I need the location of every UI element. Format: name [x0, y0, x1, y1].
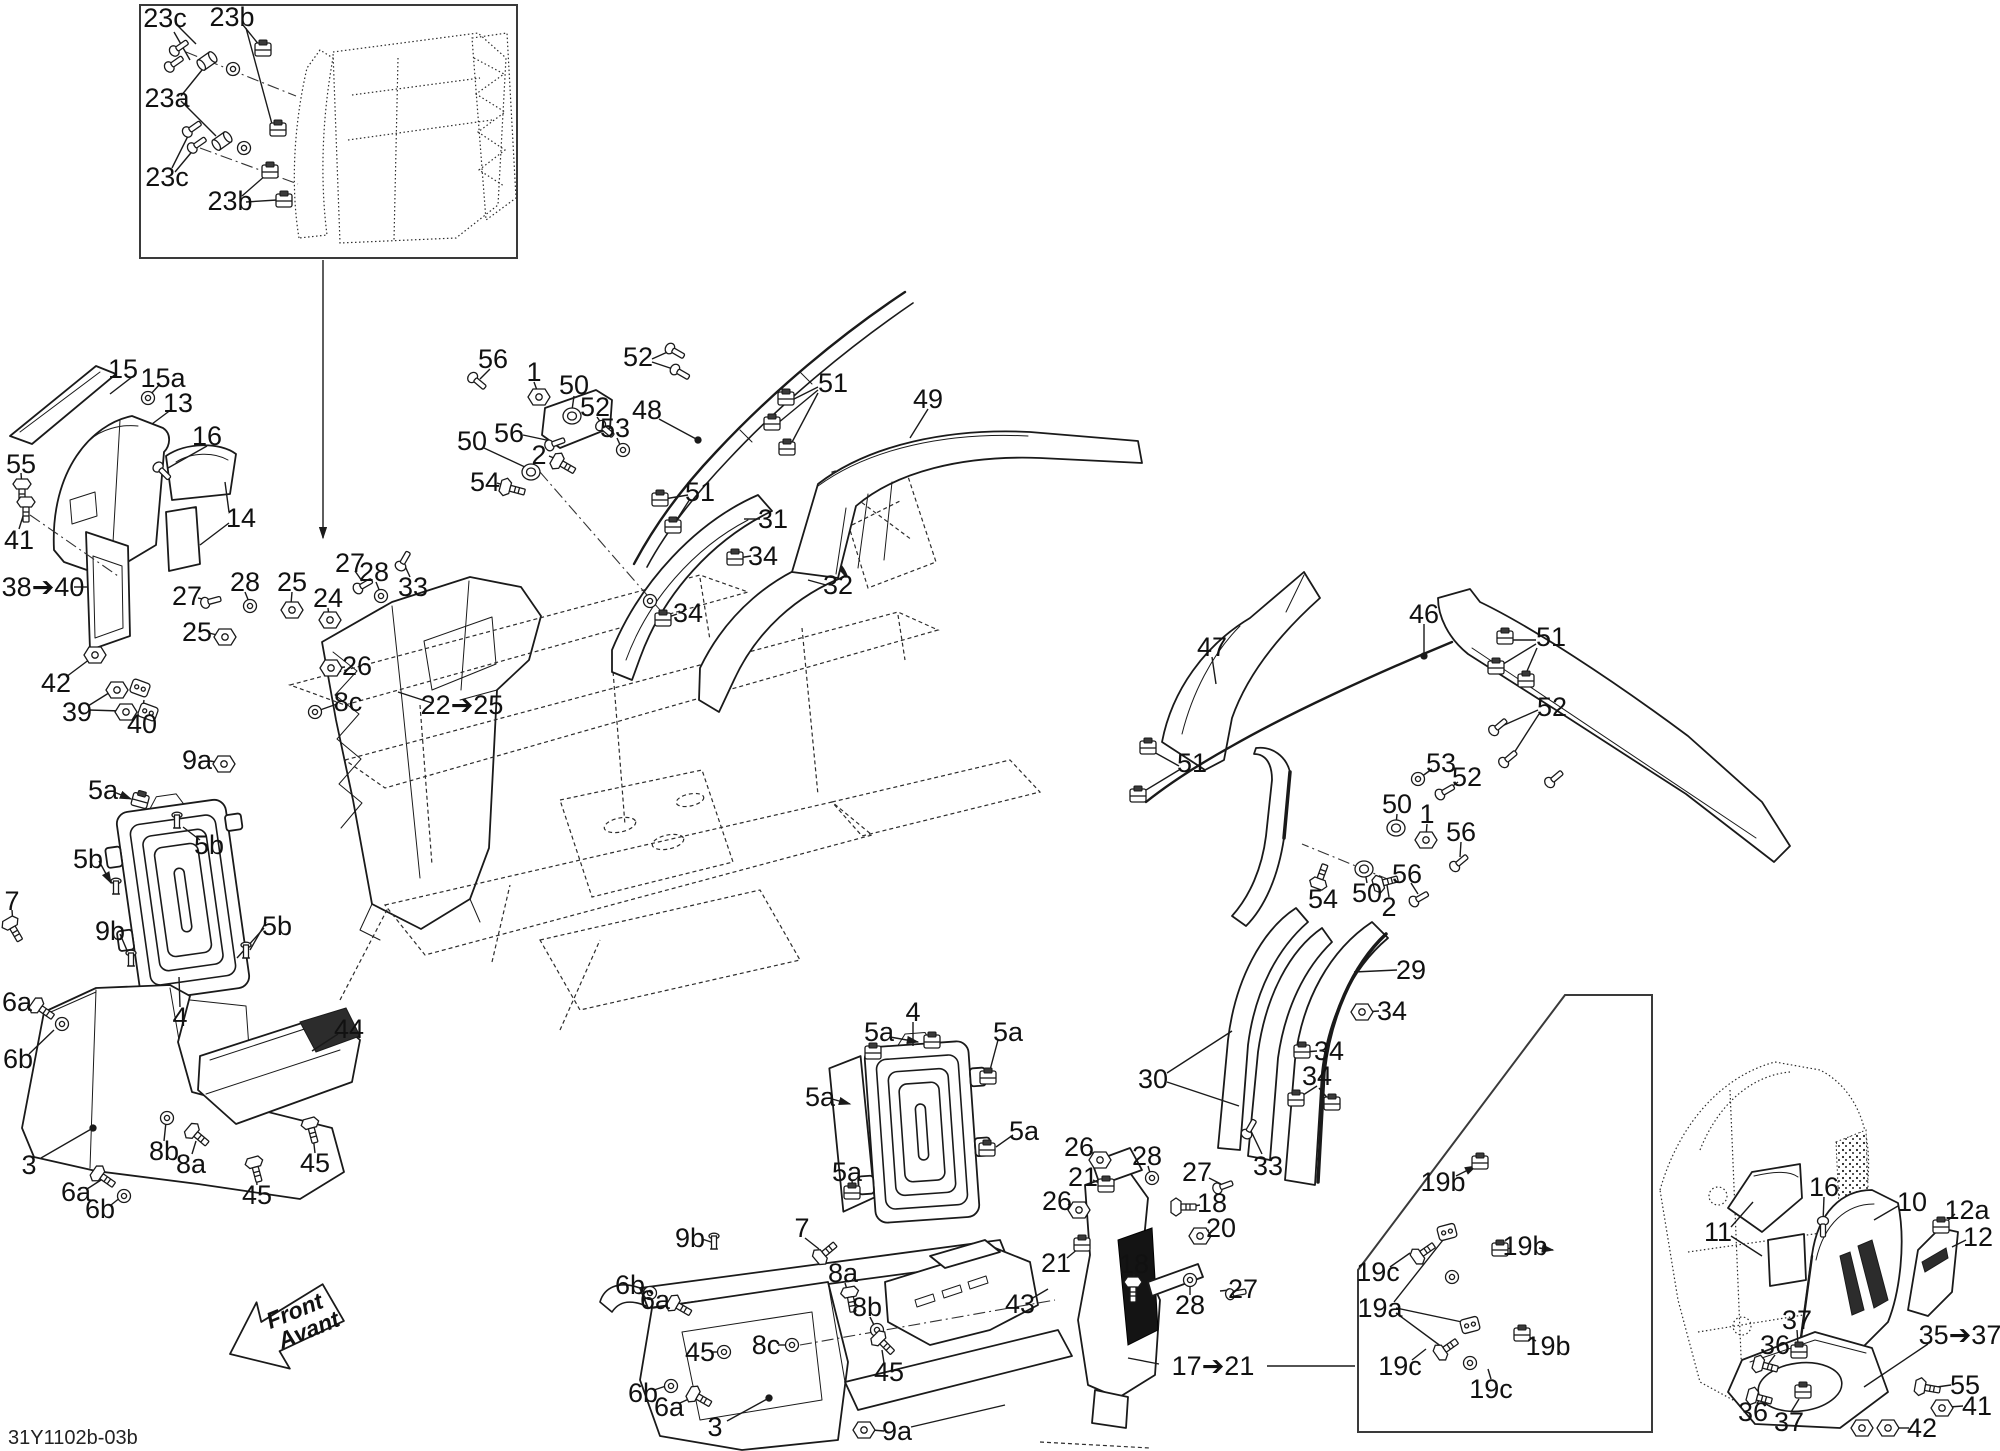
callout-45: 45	[242, 1180, 272, 1210]
axis-line	[200, 148, 298, 184]
clip-icon	[1130, 786, 1146, 802]
nut-icon	[1351, 1004, 1373, 1020]
spacer-icon	[195, 50, 218, 71]
callout-19a: 19a	[1357, 1293, 1403, 1323]
clip-icon	[979, 1140, 995, 1156]
nut-icon	[1415, 832, 1437, 848]
washer-icon	[644, 595, 657, 608]
screw-icon	[1407, 889, 1430, 909]
bolt-icon	[1914, 1377, 1942, 1399]
washer-icon	[142, 392, 155, 405]
callout-54: 54	[470, 467, 500, 497]
screw-icon	[663, 341, 686, 361]
nut-icon	[1877, 1420, 1899, 1436]
plate-icon	[1459, 1316, 1480, 1334]
clip-icon	[764, 414, 780, 430]
callout-47: 47	[1197, 632, 1227, 662]
callout-7: 7	[794, 1213, 809, 1243]
nut-icon	[281, 602, 303, 618]
clip-icon	[1791, 1342, 1807, 1358]
callout-1: 1	[1419, 799, 1434, 829]
clip-icon	[1098, 1176, 1114, 1192]
washer-icon	[665, 1380, 678, 1393]
callout-10: 10	[1897, 1187, 1927, 1217]
clip-icon	[1074, 1235, 1090, 1251]
leader-line	[484, 448, 527, 468]
screw-icon	[393, 549, 413, 572]
nut-icon	[853, 1422, 875, 1438]
inset-border	[140, 5, 517, 258]
clip-icon	[665, 517, 681, 533]
exploded-parts-diagram: Front Avant 31Y1102b-03b 23c23b23a23c23b…	[0, 0, 2000, 1451]
callout-6b: 6b	[85, 1194, 115, 1224]
screw-icon	[668, 362, 691, 382]
clip-icon	[924, 1032, 940, 1048]
callout-44: 44	[334, 1014, 364, 1044]
callout-28: 28	[359, 557, 389, 587]
callout-28: 28	[1132, 1141, 1162, 1171]
front-direction-arrow: Front Avant	[216, 1275, 353, 1388]
grommet-icon	[1355, 861, 1373, 877]
callout-21: 21	[1041, 1248, 1071, 1278]
callout-56: 56	[494, 418, 524, 448]
clip-icon	[270, 120, 286, 136]
callout-51: 51	[1177, 748, 1207, 778]
callout-8b: 8b	[149, 1136, 179, 1166]
callout-45: 45	[874, 1357, 904, 1387]
callout-45: 45	[685, 1337, 715, 1367]
callout-52: 52	[1452, 762, 1482, 792]
callout-20: 20	[1206, 1213, 1236, 1243]
callout-5b: 5b	[194, 830, 224, 860]
callout-23b: 23b	[209, 2, 254, 32]
nut-icon	[320, 660, 342, 676]
leader-line	[659, 419, 698, 440]
callout-41: 41	[1962, 1391, 1992, 1421]
callout-12a: 12a	[1944, 1195, 1990, 1225]
clip-icon	[1140, 738, 1156, 754]
leader-line	[1396, 1313, 1442, 1347]
callout-28: 28	[1175, 1290, 1205, 1320]
callout-1: 1	[526, 357, 541, 387]
callout-5a: 5a	[1009, 1116, 1040, 1146]
pin-icon	[126, 950, 136, 966]
callout-25: 25	[277, 567, 307, 597]
screw-icon	[1543, 768, 1566, 790]
washer-icon	[1184, 1274, 1197, 1287]
callout-23b: 23b	[207, 186, 252, 216]
drawing-number: 31Y1102b-03b	[8, 1427, 138, 1449]
washer-icon	[617, 444, 630, 457]
callout-45: 45	[300, 1148, 330, 1178]
clip-icon	[1497, 628, 1513, 644]
callout-41: 41	[4, 525, 34, 555]
callout-4: 4	[905, 997, 920, 1027]
part-11-deflectors	[1728, 1164, 1806, 1286]
clip-icon	[1488, 658, 1504, 674]
screw-icon	[1487, 716, 1510, 738]
callout-52: 52	[623, 342, 653, 372]
washer-icon	[718, 1346, 731, 1359]
callout-6a: 6a	[640, 1285, 671, 1315]
callout-50: 50	[1382, 789, 1412, 819]
part-38-40-lower-panel	[86, 532, 130, 650]
leader-line	[1354, 970, 1397, 972]
part-10-console-panel	[1800, 1190, 1902, 1356]
callout-5a: 5a	[864, 1017, 895, 1047]
washer-icon	[224, 60, 242, 78]
callout-2: 2	[531, 440, 546, 470]
callout-40: 40	[127, 709, 157, 739]
part-22-25-front-frame	[322, 577, 541, 940]
nut-icon	[214, 629, 236, 645]
callout-23a: 23a	[144, 83, 190, 113]
callout-27: 27	[172, 581, 202, 611]
callout-9b: 9b	[95, 916, 125, 946]
callout-53: 53	[600, 413, 630, 443]
pin-icon	[111, 878, 121, 894]
callout-23c: 23c	[145, 162, 189, 192]
part-12-side-strip	[1908, 1228, 1958, 1316]
leader-line	[1167, 1031, 1232, 1073]
callout-56: 56	[478, 344, 508, 374]
callout-8b: 8b	[852, 1292, 882, 1322]
callout-36: 36	[1738, 1397, 1768, 1427]
callout-19b: 19b	[1502, 1231, 1547, 1261]
leader-line	[1731, 1236, 1762, 1256]
grommet-icon	[563, 408, 581, 424]
callout-42: 42	[41, 668, 71, 698]
leader-line	[200, 523, 229, 545]
washer-icon	[56, 1018, 69, 1031]
callout-27: 27	[1228, 1274, 1258, 1304]
washer-icon	[118, 1190, 131, 1203]
callout-50: 50	[457, 426, 487, 456]
callout-8a: 8a	[176, 1149, 207, 1179]
leader-line	[911, 1405, 1005, 1427]
part-4-radiator-left	[99, 785, 265, 1003]
callout-labels-layer: 23c23b23a23c23b1515a131655411438➔4027282…	[2, 2, 2000, 1446]
screw-icon	[1448, 852, 1471, 874]
clip-icon	[1294, 1042, 1310, 1058]
clip-icon	[980, 1068, 996, 1084]
callout-51: 51	[685, 477, 715, 507]
callout-7: 7	[4, 886, 19, 916]
callout-33: 33	[398, 572, 428, 602]
callout-9b: 9b	[675, 1223, 705, 1253]
callout-9a: 9a	[882, 1416, 913, 1446]
callout-5a: 5a	[832, 1157, 863, 1187]
clip-icon	[652, 490, 668, 506]
washer-icon	[1464, 1357, 1477, 1370]
nut-icon	[84, 647, 106, 663]
axis-line	[1302, 844, 1390, 880]
clip-icon	[1795, 1382, 1811, 1398]
callout-34: 34	[1302, 1061, 1332, 1091]
callout-19c: 19c	[1378, 1351, 1422, 1381]
callout-2: 2	[1381, 892, 1396, 922]
callout-17➔21: 17➔21	[1172, 1351, 1255, 1381]
part-14-deflector-lower	[166, 507, 200, 571]
callout-24: 24	[313, 583, 343, 613]
clip-icon	[262, 162, 278, 178]
part-14-deflector-upper	[166, 445, 236, 500]
grommet-icon	[1387, 820, 1405, 836]
washer-icon	[375, 590, 388, 603]
washer-icon	[1412, 773, 1425, 786]
screw-icon	[199, 593, 222, 609]
callout-5a: 5a	[993, 1017, 1024, 1047]
callout-16: 16	[1809, 1172, 1839, 1202]
callout-49: 49	[913, 384, 943, 414]
callout-52: 52	[1537, 692, 1567, 722]
clip-icon	[778, 389, 794, 405]
nut-icon	[528, 389, 550, 405]
callout-6a: 6a	[2, 987, 33, 1017]
callout-11: 11	[1704, 1217, 1732, 1247]
callout-16: 16	[192, 421, 222, 451]
callout-38➔40: 38➔40	[2, 572, 85, 602]
callout-35➔37: 35➔37	[1919, 1320, 2000, 1350]
callout-19b: 19b	[1525, 1331, 1570, 1361]
part-49-seat-base-panel	[792, 431, 1142, 578]
callout-12: 12	[1963, 1222, 1993, 1252]
callout-28: 28	[230, 567, 260, 597]
screw-icon	[180, 118, 203, 139]
bolt-icon	[548, 451, 579, 479]
parts-layer: Front Avant 31Y1102b-03b	[8, 5, 1958, 1450]
callout-26: 26	[1064, 1132, 1094, 1162]
bolt-icon	[0, 914, 28, 945]
callout-29: 29	[1396, 955, 1426, 985]
bolt-icon	[1431, 1334, 1462, 1363]
page: { "document": { "part_code": "31Y1102b-0…	[0, 0, 2000, 1451]
washer-icon	[309, 706, 322, 719]
plate-icon	[129, 678, 151, 697]
callout-43: 43	[1005, 1289, 1035, 1319]
callout-34: 34	[673, 598, 703, 628]
callout-4: 4	[172, 1002, 187, 1032]
callout-56: 56	[1392, 859, 1422, 889]
axis-line	[540, 472, 660, 610]
callout-26: 26	[1042, 1186, 1072, 1216]
clip-icon	[276, 191, 292, 207]
callout-51: 51	[1536, 622, 1566, 652]
callout-19c: 19c	[1469, 1374, 1513, 1404]
callout-46: 46	[1409, 599, 1439, 629]
clip-icon	[1472, 1153, 1488, 1169]
clip-icon	[1518, 671, 1534, 687]
callout-8c: 8c	[334, 687, 363, 717]
washer-icon	[161, 1112, 174, 1125]
clip-icon	[131, 789, 151, 809]
callout-5b: 5b	[262, 911, 292, 941]
callout-14: 14	[226, 503, 256, 533]
callout-25: 25	[182, 617, 212, 647]
nut-icon	[319, 612, 341, 628]
callout-8c: 8c	[752, 1330, 781, 1360]
clip-icon	[1288, 1090, 1304, 1106]
clip-icon	[255, 40, 271, 56]
washer-icon	[786, 1339, 799, 1352]
callout-42: 42	[1907, 1413, 1937, 1443]
callout-5a: 5a	[88, 775, 119, 805]
nut-icon	[213, 756, 235, 772]
callout-5b: 5b	[73, 844, 103, 874]
callout-3: 3	[21, 1150, 36, 1180]
callout-19c: 19c	[1356, 1257, 1400, 1287]
callout-55: 55	[6, 449, 36, 479]
clip-icon	[779, 439, 795, 455]
bolt-icon	[1171, 1198, 1196, 1216]
callout-32: 32	[823, 570, 853, 600]
part-23-frame-column	[294, 50, 333, 238]
inset-box-front-frame-detail	[140, 5, 517, 258]
callout-54: 54	[1308, 884, 1338, 914]
screw-icon	[1497, 748, 1520, 770]
callout-6a: 6a	[654, 1392, 685, 1422]
washer-icon	[235, 139, 253, 157]
callout-37: 37	[1774, 1407, 1804, 1437]
callout-21: 21	[1068, 1162, 1098, 1192]
callout-31: 31	[758, 504, 788, 534]
nut-icon	[1851, 1420, 1873, 1436]
part-15-inner-line	[20, 372, 100, 432]
washer-icon	[1146, 1172, 1159, 1185]
callout-56: 56	[1446, 817, 1476, 847]
callout-18: 18	[1119, 1249, 1149, 1279]
callout-22➔25: 22➔25	[421, 690, 504, 720]
clip-icon	[727, 549, 743, 565]
callout-27: 27	[1182, 1157, 1212, 1187]
callout-30: 30	[1138, 1064, 1168, 1094]
callout-19b: 19b	[1420, 1167, 1465, 1197]
callout-50: 50	[1352, 878, 1382, 908]
diagram-svg: Front Avant 31Y1102b-03b 23c23b23a23c23b…	[0, 0, 2000, 1451]
callout-23c: 23c	[143, 3, 187, 33]
bolt-icon	[17, 497, 35, 522]
callout-48: 48	[632, 395, 662, 425]
plate-icon	[1436, 1223, 1457, 1241]
clip-icon	[655, 610, 671, 626]
callout-33: 33	[1253, 1151, 1283, 1181]
callout-8a: 8a	[828, 1258, 859, 1288]
washer-icon	[244, 600, 257, 613]
washer-icon	[1446, 1271, 1459, 1284]
nut-icon	[106, 682, 128, 698]
callout-51: 51	[818, 368, 848, 398]
callout-5a: 5a	[805, 1082, 836, 1112]
callout-3: 3	[707, 1412, 722, 1442]
callout-9a: 9a	[182, 745, 213, 775]
callout-34: 34	[748, 541, 778, 571]
callout-15: 15	[108, 354, 138, 384]
callout-34: 34	[1377, 996, 1407, 1026]
clip-icon	[1324, 1094, 1340, 1110]
bolt-icon	[1408, 1238, 1439, 1267]
part-23-frame-lines	[348, 58, 492, 240]
bolt-icon	[498, 477, 527, 501]
callout-26: 26	[342, 651, 372, 681]
leader-line	[890, 1037, 918, 1042]
callout-36: 36	[1760, 1330, 1790, 1360]
callout-6b: 6b	[3, 1044, 33, 1074]
part-pillar-lip	[1232, 748, 1290, 926]
callout-13: 13	[163, 388, 193, 418]
callout-39: 39	[62, 697, 92, 727]
